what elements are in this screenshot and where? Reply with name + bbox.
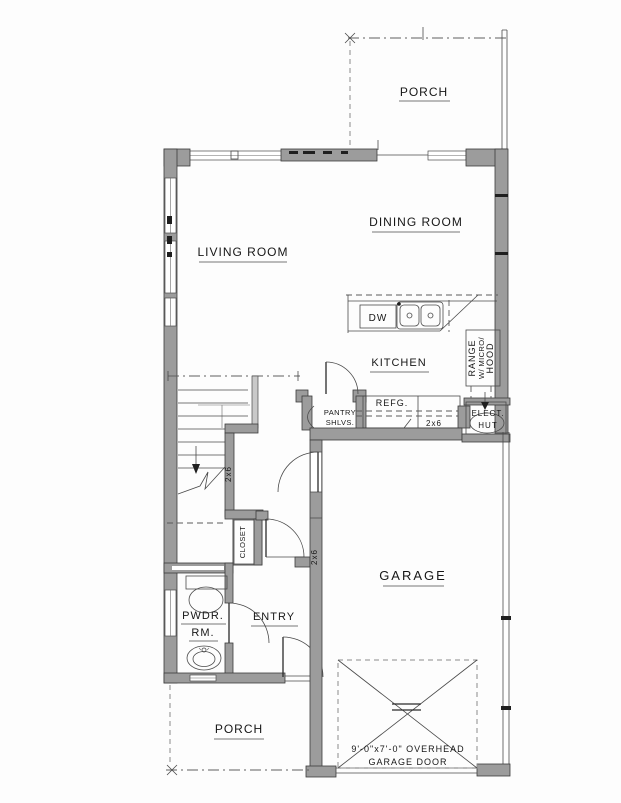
powder-door [229, 603, 269, 643]
bottom-porch: PORCH [166, 685, 310, 775]
dishwasher-label: DW [369, 313, 388, 324]
stud-note-stair: 2x6 [224, 466, 233, 482]
garage-door-note-1: 9'-0"x7'-0" OVERHEAD [351, 744, 464, 754]
garage: 2x6 GARAGE 9'-0"x7'-0" OVERHEAD GARAGE D… [278, 432, 511, 777]
bottom-porch-label: PORCH [215, 722, 263, 736]
pantry-label-1: PANTRY [324, 408, 356, 417]
kitchen-sink [397, 302, 443, 329]
powder-room-label-2: RM. [191, 627, 214, 639]
range-label-3: HOOD [485, 343, 495, 374]
elect-label-2: HUT [478, 421, 497, 430]
living-room-label: LIVING ROOM [197, 245, 288, 259]
entry-closet: CLOSET [233, 511, 310, 567]
overhead-garage-door: 9'-0"x7'-0" OVERHEAD GARAGE DOOR [338, 660, 477, 768]
stud-note-kitchen: 2x6 [426, 419, 442, 428]
front-wall [164, 637, 323, 683]
floor-plan-sheet: PORCH LIVING R [0, 0, 621, 803]
dining-room-label: DINING ROOM [369, 215, 463, 229]
kitchen-counter: DW [346, 295, 498, 333]
kitchen-label: KITCHEN [371, 357, 426, 369]
entry-label: ENTRY [253, 611, 295, 623]
pantry-label-2: SHLVS. [326, 418, 355, 427]
powder-room-label-1: PWDR. [182, 610, 224, 622]
closet-label: CLOSET [238, 526, 247, 558]
stair-direction-arrow [192, 464, 200, 474]
refrigerator-alcove: REFG. [356, 396, 470, 428]
elect-label-1: ELECT. [471, 409, 504, 418]
hall-kitchen-zone: PANTRY SHLVS. REFG. 2x6 ELECT. HUT [168, 362, 510, 442]
refrigerator-label: REFG. [376, 398, 409, 408]
top-porch-label: PORCH [400, 85, 448, 99]
garage-label: GARAGE [379, 568, 447, 583]
stair-break-line [178, 467, 225, 494]
range-label-1: RANGE [467, 339, 477, 376]
toilet [186, 576, 227, 613]
garage-door-note-2: GARAGE DOOR [368, 757, 447, 767]
staircase: 2x6 [167, 390, 263, 523]
top-porch: PORCH [345, 27, 508, 151]
pantry: PANTRY SHLVS. [302, 396, 366, 430]
powder-sink [187, 646, 221, 670]
floor-plan-drawing: PORCH LIVING R [0, 0, 621, 803]
stud-note-garage: 2x6 [310, 549, 319, 565]
